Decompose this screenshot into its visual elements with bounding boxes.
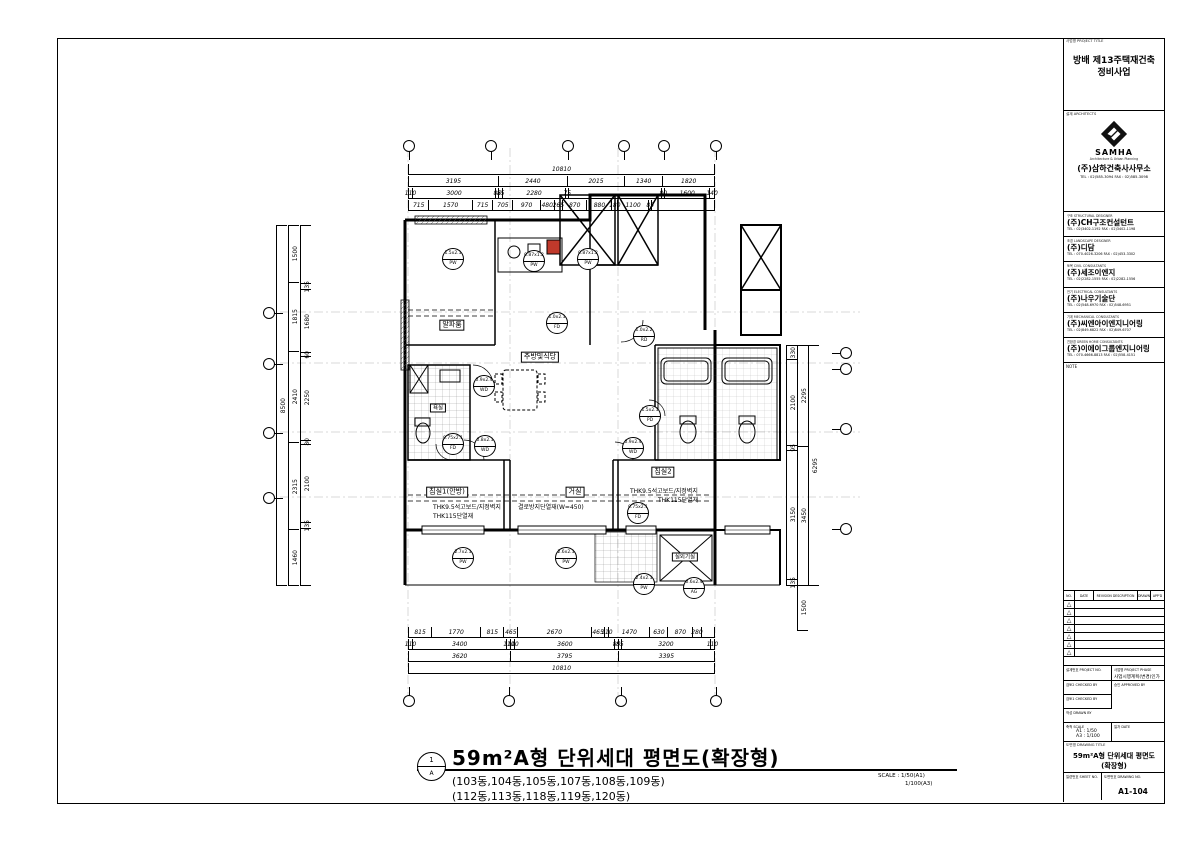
annotation-gypsum-right: THK9.5석고보드/지정벽지 xyxy=(630,486,698,495)
grid-bubble xyxy=(840,363,852,375)
note-box: NOTE xyxy=(1064,363,1164,591)
drawing-number: A1-104 xyxy=(1104,787,1162,796)
consultant-row: 구조 STRUCTURAL DESIGNER (주)CH구조컨설턴트 TEL :… xyxy=(1064,212,1164,237)
grid-bubble xyxy=(403,695,415,707)
grid-bubble xyxy=(263,427,275,439)
drawing-title-buildings-1: (103동,104동,105동,107동,108동,109동) xyxy=(452,773,665,789)
project-no-label: 설계번호 PROJECT NO. xyxy=(1064,666,1112,680)
revision-row: △ xyxy=(1064,641,1164,649)
title-block: 사업명 PROJECT TITLE 방배 제13주택재건축 정비사업 설계 AR… xyxy=(1063,38,1164,802)
room-label-living: 거실 xyxy=(566,487,585,498)
dim-row-top-overall: 10810 xyxy=(408,164,715,175)
bathrooms xyxy=(658,348,777,460)
revision-table: NO. DATE REVISION DESCRIPTION DRAWN APP'… xyxy=(1064,591,1164,666)
revision-marker-icon: △ xyxy=(1064,633,1075,640)
room-label-bed2: 침실2 xyxy=(651,467,674,478)
drawing-title: 59m²A형 단위세대 평면도(확장형) xyxy=(452,742,780,771)
architect-company: (주)삼하건축사사무소 xyxy=(1064,163,1164,174)
tb-drawing-title-line1: 59m²A형 단위세대 평면도 xyxy=(1064,751,1164,761)
architect-tel: TEL : 02)585-3094 FAX : 02)585-3098 xyxy=(1064,175,1164,179)
consultant-tel: TEL : 070-4026-3206 FAX : 02)453-3302 xyxy=(1067,252,1161,256)
revision-row: △ xyxy=(1064,633,1164,641)
dim-row-bottom-1: 815177081546526704651101470630870280 xyxy=(408,627,715,638)
room-label-bath: 욕실 xyxy=(430,403,446,412)
tb-drawing-title-line2: (확장형) xyxy=(1064,761,1164,771)
room-label-ac-unit: 실외기실 xyxy=(672,552,698,561)
consultant-name: (주)디담 xyxy=(1067,243,1161,252)
dim-row-top-2: 31952440201513401820 xyxy=(408,176,715,187)
dim-col-right-b: 22953450 xyxy=(797,345,808,586)
title-symbol-number: 1 xyxy=(418,753,445,766)
annotation-condensation: 결로방지단열재(W=450) xyxy=(518,502,584,511)
consultant-name: (주)씨엔아이엔지니어링 xyxy=(1067,319,1161,328)
grid-bubble xyxy=(562,140,574,152)
revision-header: NO. DATE REVISION DESCRIPTION DRAWN APP'… xyxy=(1064,591,1164,601)
window-tag: 2.4x2.1PW xyxy=(633,573,655,595)
revision-marker-icon: △ xyxy=(1064,617,1075,624)
door-tag: 1.0x2.1FD xyxy=(546,312,568,334)
samha-logo-icon xyxy=(1100,120,1128,148)
consultant-row: 조경 LANDSCAPE DESIGNER (주)디담 TEL : 070-40… xyxy=(1064,237,1164,262)
door-tag: 0.8x2.1WD xyxy=(474,435,496,457)
dining-table xyxy=(495,370,545,410)
grid-bubble xyxy=(485,140,497,152)
room-label-bed1: 침실1(안방) xyxy=(426,487,468,498)
revision-col-appd: APP'D xyxy=(1151,591,1164,600)
revision-row: △ xyxy=(1064,609,1164,617)
revision-marker-icon: △ xyxy=(1064,601,1075,608)
revision-col-no: NO. xyxy=(1064,591,1075,600)
revision-row: △ xyxy=(1064,625,1164,633)
consultant-row: 기계 MECHANICAL CONSULTANTS (주)씨엔아이엔지니어링 T… xyxy=(1064,313,1164,338)
door-tag: 1.5x2.1PD xyxy=(639,405,661,427)
project-title-line2: 정비사업 xyxy=(1064,67,1164,79)
louver-tag: 0.6x2.4AG xyxy=(683,577,705,599)
consultant-tel: TEL : 02)3402-1192 FAX : 02)3402-1198 xyxy=(1067,227,1161,231)
revision-row: △ xyxy=(1064,601,1164,609)
checked2-label: 검토2 CHECKED BY xyxy=(1064,681,1112,695)
dim-col-right-d: 1500 xyxy=(797,585,808,631)
grid-bubble xyxy=(840,347,852,359)
window-tag: 0.87x1.2PW xyxy=(577,248,599,270)
consultant-row: 친환경 GREEN HOME CONSULTANTS (주)이에이그룹엔지니어링… xyxy=(1064,338,1164,363)
grid-bubble xyxy=(263,307,275,319)
samha-logo-text: SAMHA xyxy=(1064,148,1164,157)
grid-bubble xyxy=(710,140,722,152)
grid-bubble xyxy=(263,358,275,370)
dim-row-bottom-3: 362037953395 xyxy=(408,651,715,662)
grid-bubble xyxy=(840,523,852,535)
annotation-insulation-left: THK115단열재 xyxy=(433,511,473,520)
revision-marker-icon: △ xyxy=(1064,649,1075,656)
title-symbol-letter: A xyxy=(418,766,445,780)
project-title-box: 사업명 PROJECT TITLE 방배 제13주택재건축 정비사업 xyxy=(1064,38,1164,111)
dim-col-left-b: 15001815241023151460 xyxy=(288,225,299,586)
grid-bubble xyxy=(615,695,627,707)
dwg-no-label: 도면번호 DRAWING NO. xyxy=(1104,775,1141,779)
samha-tagline: Architecture & Urban Planning xyxy=(1064,157,1164,161)
drawing-title-scale-a3: 1/100(A3) xyxy=(905,781,932,787)
revision-col-drawn: DRAWN xyxy=(1138,591,1151,600)
door-tag: 0.9x2.4WD xyxy=(622,437,644,459)
door-tag: 1.0x2.2RD xyxy=(633,325,655,347)
door-tag: 0.75x2.1FD xyxy=(442,433,464,455)
annotation-gypsum-left: THK9.5석고보드/지정벽지 xyxy=(433,502,501,511)
window-left xyxy=(401,300,409,370)
dim-row-top-3: 11030008585228075801600140 xyxy=(408,188,715,199)
window-tag: 0.87x1.2PW xyxy=(523,250,545,272)
date-label: 일자 DATE xyxy=(1112,723,1164,741)
consultant-tel: TEL : 02)548-6970 FAX : 02)548-6951 xyxy=(1067,303,1161,307)
dwg-no-cell: 도면번호 DRAWING NO. A1-104 xyxy=(1102,773,1164,800)
consultant-name: (주)이에이그룹엔지니어링 xyxy=(1067,344,1161,353)
grid-bubble xyxy=(403,140,415,152)
drawing-title-scale-a1: SCALE : 1/50(A1) xyxy=(878,773,925,779)
phase-value: 사업시행계획(변경)인가 xyxy=(1114,674,1162,680)
grid-bubble xyxy=(840,423,852,435)
grid-bubble xyxy=(503,695,515,707)
drawn-label: 작성 DRAWN BY xyxy=(1064,709,1112,723)
door-tag: 0.75x2.1FD xyxy=(627,502,649,524)
title-symbol: 1 A xyxy=(417,752,446,781)
approved-label: 승인 APPROVED BY xyxy=(1112,681,1164,723)
drawing-sheet: { "sheet": { "project_title_header": "사업… xyxy=(0,0,1191,842)
room-label-alpha: 알파룸 xyxy=(439,320,464,331)
dim-row-bottom-overall: 10810 xyxy=(408,663,715,674)
sheet-no-label: 일련번호 SHEET NO. xyxy=(1064,773,1102,800)
grid-bubble xyxy=(618,140,630,152)
window-tag: 1.5x2.1PW xyxy=(442,248,464,270)
consultant-name: (주)세조이엔지 xyxy=(1067,268,1161,277)
dim-col-right-c: 6295 xyxy=(808,345,819,586)
drawing-title-buildings-2: (112동,113동,118동,119동,120동) xyxy=(452,788,630,804)
grid-bubble xyxy=(658,140,670,152)
dim-row-top-4: 7151570715705970480265870880180110085 xyxy=(408,200,715,211)
note-label: NOTE xyxy=(1064,363,1164,370)
scale-a3: A3 : 1/100 xyxy=(1076,734,1109,739)
grid-bubble xyxy=(263,492,275,504)
grid-bubble xyxy=(710,695,722,707)
phase-cell: 사업명 PROJECT PHASE 사업시행계획(변경)인가 xyxy=(1112,666,1164,680)
dim-row-bottom-2: 1103400110110360085853200110 xyxy=(408,639,715,650)
window-top xyxy=(415,216,487,224)
revision-marker-icon: △ xyxy=(1064,609,1075,616)
revision-row: △ xyxy=(1064,649,1164,657)
project-title-line1: 방배 제13주택재건축 xyxy=(1064,55,1164,67)
revision-col-date: DATE xyxy=(1075,591,1094,600)
revision-marker-icon: △ xyxy=(1064,625,1075,632)
info-grid: 설계번호 PROJECT NO. 사업명 PROJECT PHASE 사업시행계… xyxy=(1064,666,1164,800)
drawing-title-cell: 도면명 DRAWING TITLE 59m²A형 단위세대 평면도 (확장형) xyxy=(1064,742,1164,773)
dim-col-left-a: 8500 xyxy=(276,225,287,586)
architects-box: 설계 ARCHITECTS SAMHA Architecture & Urban… xyxy=(1064,111,1164,212)
room-label-kitchen: 주방및식당 xyxy=(521,352,559,363)
architects-header: 설계 ARCHITECTS xyxy=(1064,111,1164,118)
drawing-title-label: 도면명 DRAWING TITLE xyxy=(1064,742,1164,749)
annotation-insulation-right: THK115단열재 xyxy=(658,495,698,504)
consultant-name: (주)나우기술단 xyxy=(1067,294,1161,303)
revision-row: △ xyxy=(1064,617,1164,625)
project-title-header: 사업명 PROJECT TITLE xyxy=(1064,38,1164,45)
title-underline xyxy=(417,769,957,771)
phase-label: 사업명 PROJECT PHASE xyxy=(1114,668,1151,672)
revision-rows: △ △ △ △ xyxy=(1064,601,1164,657)
door-tag: 0.9x2.4WD xyxy=(473,375,495,397)
dim-col-left-c: 1351680602250802100135 xyxy=(300,225,311,586)
consultant-name: (주)CH구조컨설턴트 xyxy=(1067,218,1161,227)
consultant-row: 토목 CIVIL CONSULTANTS (주)세조이엔지 TEL : 02)2… xyxy=(1064,262,1164,287)
window-tag: 2.6x2.1PW xyxy=(555,547,577,569)
consultant-tel: TEL : 02)2282-1555 FAX : 02)2282-1556 xyxy=(1067,277,1161,281)
consultants-list: 구조 STRUCTURAL DESIGNER (주)CH구조컨설턴트 TEL :… xyxy=(1064,212,1164,363)
consultant-tel: TEL : 070-4666-8813 FAX : 02)558-4151 xyxy=(1067,353,1161,357)
consultant-tel: TEL : 02)849-6822 FAX : 02)849-6707 xyxy=(1067,328,1161,332)
window-tag: 2.7x2.1PW xyxy=(452,547,474,569)
checked1-label: 검토1 CHECKED BY xyxy=(1064,695,1112,709)
dim-col-right-a: 3302100953150135 xyxy=(786,345,797,586)
revision-col-desc: REVISION DESCRIPTION xyxy=(1094,591,1138,600)
scale-cell: 축척 SCALE A1 : 1/50 A3 : 1/100 xyxy=(1064,723,1112,741)
consultant-row: 전기 ELECTRICAL CONSULTANTS (주)나우기술단 TEL :… xyxy=(1064,288,1164,313)
revision-marker-icon: △ xyxy=(1064,641,1075,648)
